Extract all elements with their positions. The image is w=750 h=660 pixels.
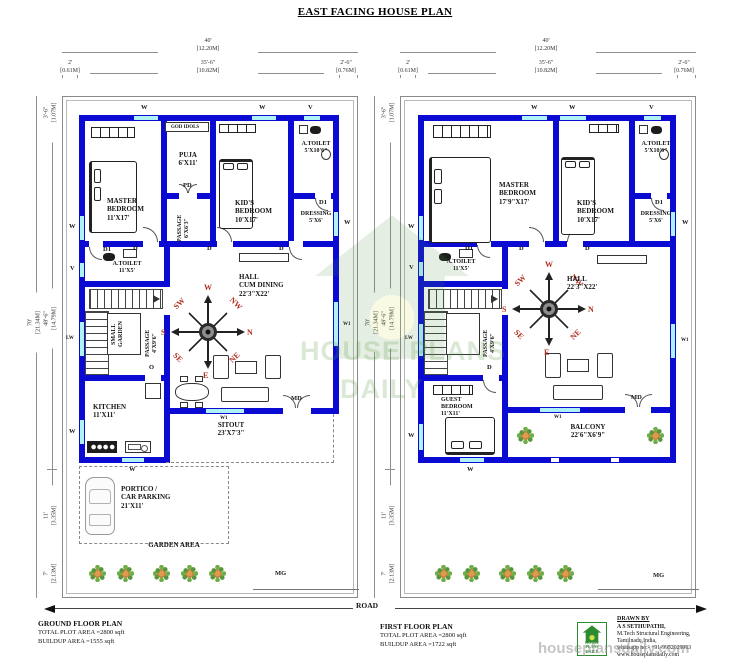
door-label: D1 xyxy=(319,200,327,207)
kitchen-opening xyxy=(145,375,161,381)
wall xyxy=(85,281,166,287)
flower-plant-icon xyxy=(435,565,452,582)
room-label-hall: HALL CUM DINING 22'3"X22' xyxy=(239,273,305,298)
pillow xyxy=(223,163,234,170)
room-label-sitout: SITOUT 23'X7'3" xyxy=(201,421,261,438)
dim-height-low-first: 11' [3.35M] xyxy=(382,486,399,546)
wardrobe xyxy=(219,124,256,133)
door-label: D xyxy=(487,365,492,372)
window xyxy=(121,457,145,463)
pillow xyxy=(451,441,464,449)
credits-location: Tamilnadu,India, xyxy=(617,638,657,644)
compass-label-e: E xyxy=(544,348,549,357)
door-gap xyxy=(179,193,197,199)
road-arrow-left xyxy=(44,605,55,613)
dim-height-bottom-ground: 7' [2.13M] xyxy=(44,544,61,604)
credits-whatsapp: whatsapp no:- +91-9952029063 xyxy=(617,645,691,651)
stair-direction-arrow xyxy=(153,295,160,303)
door-label: D1 xyxy=(103,247,111,254)
sitout-boundary xyxy=(166,462,334,463)
tv-unit xyxy=(239,253,289,262)
wall xyxy=(210,121,216,247)
pillow xyxy=(565,161,576,168)
first-plot-area: TOTAL PLOT AREA =2800 sqft xyxy=(380,632,466,639)
door-label: D xyxy=(585,246,590,253)
staircase-upper-flight xyxy=(89,289,163,309)
stove xyxy=(87,441,117,453)
wall xyxy=(424,281,502,287)
railing-gap xyxy=(611,458,619,462)
road-line xyxy=(395,608,695,609)
main-door-gap xyxy=(283,408,311,414)
room-label-master-bedroom: MASTER BEDROOM 11'X17' xyxy=(107,197,163,222)
flower-plant-icon xyxy=(153,565,170,582)
main-door-gap xyxy=(625,407,651,413)
flower-plant-icon xyxy=(463,565,480,582)
dim-width-right-first: 2'-6" [0.76M] xyxy=(662,60,706,75)
flower-plant-icon xyxy=(647,427,664,444)
ground-plot-area: TOTAL PLOT AREA =2800 sqft xyxy=(38,629,124,636)
washbasin xyxy=(299,125,308,134)
staircase-lower-flight xyxy=(424,311,448,375)
dim-height-main-ground: 48'-6" [14.79M] xyxy=(44,289,61,349)
chair xyxy=(195,402,203,408)
window-label: LW xyxy=(66,336,74,341)
ventilator xyxy=(303,115,321,121)
toilet-wc xyxy=(310,126,321,134)
first-floor-plan: W E N S NW NE SW SE MASTER BEDROOM 17'9"… xyxy=(400,96,696,598)
road-arrow-right xyxy=(696,605,707,613)
window xyxy=(79,419,85,445)
window xyxy=(133,115,159,121)
dim-height-low-ground: 11' [3.35M] xyxy=(44,486,61,546)
wall xyxy=(333,115,339,414)
window-label: W1 xyxy=(220,416,228,421)
sofa-chair xyxy=(597,353,613,378)
gate-step-line xyxy=(253,589,359,590)
center-table xyxy=(567,359,589,372)
kitchen-sink xyxy=(125,441,151,453)
flower-plant-icon xyxy=(89,565,106,582)
ventilator xyxy=(418,261,424,277)
room-label-attached-toilet: A.TOILET 5'X10'6" xyxy=(635,141,677,155)
ground-plan-title: GROUND FLOOR PLAN xyxy=(38,619,122,628)
room-label-attached-toilet-mid: A.TOILET 11'X5' xyxy=(435,259,487,273)
flower-plant-icon xyxy=(557,565,574,582)
window-label: W xyxy=(69,429,76,436)
credits-name: A S SETHUPATHI, xyxy=(617,624,666,630)
god-idols-label: GOD IDOLS xyxy=(171,125,199,130)
room-label-balcony: BALCONY 22'6"X6'9" xyxy=(547,423,629,440)
credits-qualification: M.Tech Structural Engineering, xyxy=(617,631,690,637)
room-label-passage: PASSAGE 4'X9'6" xyxy=(145,319,163,367)
sitout-boundary xyxy=(333,414,334,463)
wall xyxy=(79,115,85,463)
room-label-kids-bedroom: KID'S BEDROOM 10'X17' xyxy=(235,199,285,224)
room-label-garden-area: GARDEN AREA xyxy=(129,541,219,549)
wall xyxy=(164,408,339,414)
window-label: W xyxy=(129,467,136,474)
floor-plan-sheet: EAST FACING HOUSE PLAN 40' [12.20M] 2' [… xyxy=(0,0,750,660)
flower-plant-icon xyxy=(499,565,516,582)
room-label-attached-toilet: A.TOILET 5'X10'6" xyxy=(295,141,337,155)
ventilator-label: V xyxy=(649,105,654,112)
dining-table xyxy=(175,383,209,401)
flower-plant-icon xyxy=(517,427,534,444)
chair xyxy=(180,402,188,408)
room-label-passage: PASSAGE 4'X9'6" xyxy=(483,319,501,367)
wall xyxy=(629,121,635,247)
window xyxy=(521,115,548,121)
dim-width-mid-ground: 35'-6" [10.82M] xyxy=(158,60,258,75)
window-label: W xyxy=(344,220,351,227)
pillow xyxy=(579,161,590,168)
window xyxy=(333,301,339,347)
wardrobe xyxy=(589,124,619,133)
pillow xyxy=(469,441,482,449)
compass-label-e: E xyxy=(203,371,208,380)
window-label: W xyxy=(259,105,266,112)
window-label: W xyxy=(408,433,415,440)
house-plans-daily-logo: HOUSE PLANS DAILY xyxy=(577,622,607,656)
window xyxy=(205,408,245,414)
room-label-passage-top: PASSAGE 6'X6'3" xyxy=(177,205,199,251)
window-label: W1 xyxy=(343,322,351,327)
window xyxy=(251,115,277,121)
wall xyxy=(418,457,676,463)
wall xyxy=(161,121,167,247)
window-label: W xyxy=(682,220,689,227)
door-label: D xyxy=(519,246,524,253)
window-label: W xyxy=(569,105,576,112)
flower-plant-icon xyxy=(181,565,198,582)
sofa-long xyxy=(221,387,269,402)
window-label: W xyxy=(531,105,538,112)
room-label-portico: PORTICO / CAR PARKING 21'X11' xyxy=(121,485,197,510)
window xyxy=(539,407,581,413)
dim-width-mid-first: 35'-6" [10.82M] xyxy=(496,60,596,75)
room-label-master-bedroom: MASTER BEDROOM 17'9"X17' xyxy=(499,181,561,206)
window-label: W xyxy=(408,224,415,231)
sheet-title-text: EAST FACING HOUSE PLAN xyxy=(298,6,452,18)
wall xyxy=(288,121,294,247)
railing-gap xyxy=(551,458,559,462)
dim-tick xyxy=(385,469,395,470)
opening-label: O xyxy=(149,365,154,372)
room-label-guest-bedroom: GUEST BEDROOM 11'X11' xyxy=(441,397,491,418)
logo-text: HOUSE PLANS DAILY xyxy=(578,641,606,654)
room-label-puja: PUJA 6'X11' xyxy=(167,151,209,168)
window xyxy=(670,323,676,359)
first-buildup-area: BUILDUP AREA =1722 sqft xyxy=(380,641,456,648)
dim-height-main-first: 48'-6" [14.79M] xyxy=(382,289,399,349)
wall xyxy=(79,115,339,121)
main-door-label: MD xyxy=(631,395,642,402)
credits-website-link[interactable]: www.houseplansdaily.com xyxy=(617,652,679,658)
ventilator xyxy=(643,115,662,121)
door-label: D1 xyxy=(655,200,663,207)
wall xyxy=(418,115,424,463)
stair-landing xyxy=(446,313,480,355)
window-label: W xyxy=(69,224,76,231)
road-label: ROAD xyxy=(356,602,378,610)
sofa-long xyxy=(553,385,603,400)
compass-label-s: S xyxy=(502,305,506,314)
dim-height-total-ground: 70' [21.34M] xyxy=(28,293,45,353)
dim-width-total-ground: 40' [12.20M] xyxy=(158,38,258,53)
car-icon xyxy=(85,477,115,535)
fridge xyxy=(145,383,161,399)
dim-width-left-first: 2' [0.61M] xyxy=(388,60,428,75)
room-label-small-garden: SMALL GARDEN xyxy=(111,316,137,352)
pillow xyxy=(94,169,101,183)
main-gate-label: MG xyxy=(653,573,664,580)
pillow xyxy=(434,189,442,204)
compass-label-w: W xyxy=(545,260,553,269)
wardrobe xyxy=(91,127,135,138)
washbasin xyxy=(639,125,648,134)
door-label: D xyxy=(207,246,212,253)
ventilator-label: V xyxy=(409,265,414,272)
dim-height-top-ground: 3'-6" [1.07M] xyxy=(44,83,61,143)
ventilator-label: V xyxy=(70,266,75,273)
room-label-attached-toilet-mid: A.TOILET 11'X5' xyxy=(101,261,153,275)
window-label: W1 xyxy=(681,338,689,343)
door-label: D1 xyxy=(465,246,473,253)
bed xyxy=(445,417,495,455)
dim-height-bottom-first: 7' [2.13M] xyxy=(382,544,399,604)
window xyxy=(418,215,424,241)
door-label: D xyxy=(133,246,138,253)
flower-plant-icon xyxy=(117,565,134,582)
flower-plant-icon xyxy=(209,565,226,582)
window-label: W1 xyxy=(554,415,562,420)
dim-tick xyxy=(47,469,57,470)
wardrobe xyxy=(433,385,473,395)
first-plan-title: FIRST FLOOR PLAN xyxy=(380,622,453,631)
window xyxy=(559,115,587,121)
dim-width-right-ground: 2'-6" [0.76M] xyxy=(324,60,368,75)
compass-label-n: N xyxy=(247,328,253,337)
window xyxy=(79,215,85,241)
room-label-kids-bedroom: KID'S BEDROOM 10'X17' xyxy=(577,199,629,224)
sofa-chair xyxy=(265,355,281,379)
main-gate-label: MG xyxy=(275,571,286,578)
room-label-dressing: DRESSING 5'X6' xyxy=(295,211,337,225)
ventilator-label: V xyxy=(308,105,313,112)
road-line xyxy=(55,608,353,609)
credits-heading: DRAWN BY xyxy=(617,616,650,622)
staircase-lower-flight xyxy=(85,311,109,375)
dim-height-top-first: 3'-6" [1.07M] xyxy=(382,83,399,143)
ground-floor-plan: W E N S NW NE SW SE MASTER BEDROOM 11'X1… xyxy=(62,96,358,598)
room-label-kitchen: KITCHEN 11'X11' xyxy=(93,403,141,420)
compass-rose: W E N S NW NE SW SE xyxy=(163,287,253,377)
room-label-hall: HALL 22'3"X22' xyxy=(567,275,633,292)
ventilator xyxy=(79,262,85,278)
flower-plant-icon xyxy=(527,565,544,582)
dim-width-left-ground: 2' [0.61M] xyxy=(50,60,90,75)
window-label: W xyxy=(141,105,148,112)
door-label: D xyxy=(279,246,284,253)
compass-label-n: N xyxy=(588,305,594,314)
pillow xyxy=(237,163,248,170)
door-label: PD xyxy=(183,183,192,190)
wall xyxy=(502,381,508,463)
gate-step-line xyxy=(598,589,699,590)
compass-label-w: W xyxy=(204,283,212,292)
main-door-label: MD xyxy=(291,396,302,403)
pillow xyxy=(94,187,101,201)
toilet-wc xyxy=(651,126,662,134)
pillow xyxy=(434,169,442,184)
ground-buildup-area: BUILDUP AREA =1555 sqft xyxy=(38,638,114,645)
window-label: W xyxy=(467,467,474,474)
dim-width-total-first: 40' [12.20M] xyxy=(496,38,596,53)
toilet-wc xyxy=(103,253,115,261)
window-label: LW xyxy=(405,336,413,341)
window xyxy=(418,423,424,451)
wardrobe xyxy=(433,125,491,138)
room-label-dressing: DRESSING 5'X6' xyxy=(635,211,677,225)
window xyxy=(459,457,485,463)
sheet-title: EAST FACING HOUSE PLAN xyxy=(0,6,750,18)
tv-unit xyxy=(597,255,647,264)
dim-height-total-first: 70' [21.34M] xyxy=(366,293,383,353)
stair-direction-arrow xyxy=(491,295,498,303)
